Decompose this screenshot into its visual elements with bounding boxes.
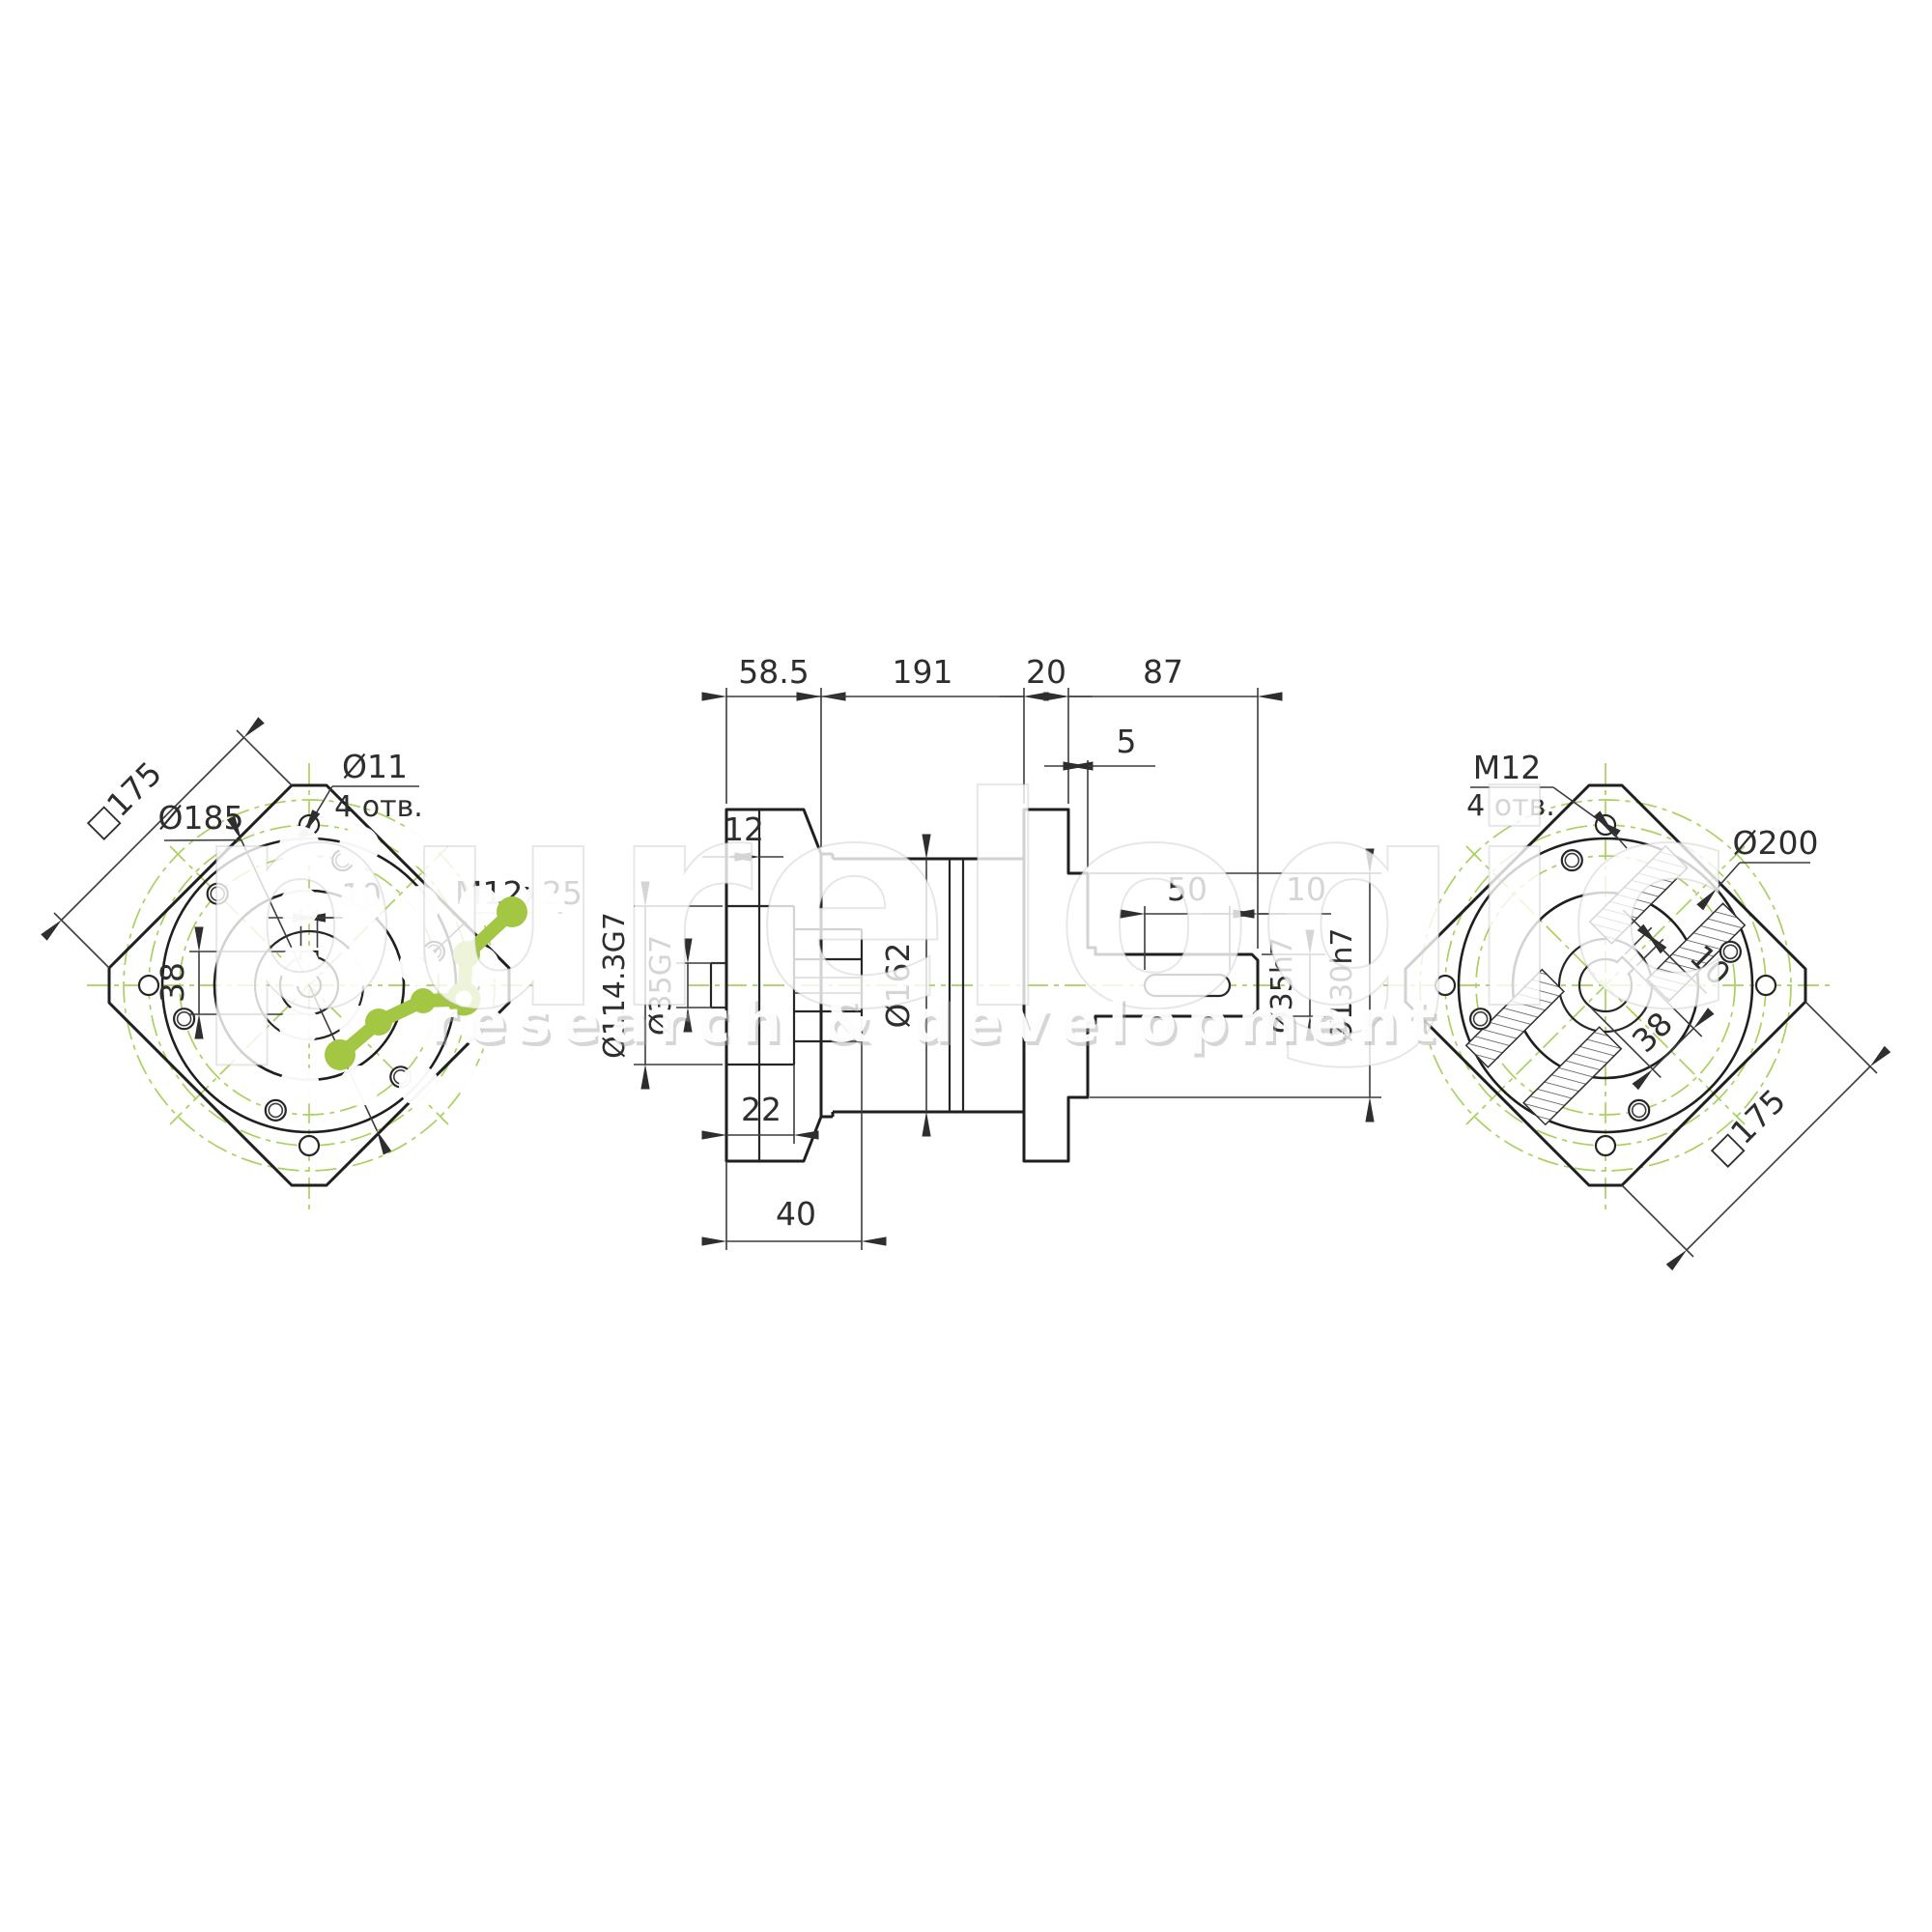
dim-recess-depth: 22 [741, 1091, 781, 1128]
left-keyway-height-label: 38 [154, 962, 191, 1003]
technical-drawing-canvas: □175 Ø185 Ø11 4 отв. 10 [0, 0, 1932, 1932]
dim-input-depth: 40 [776, 1195, 816, 1233]
watermark-subtitle: research & development [429, 988, 1445, 1056]
dim-len-flange: 20 [1026, 653, 1066, 691]
dim-len-body: 191 [893, 653, 953, 691]
watermark: purelogic research & development researc… [192, 736, 1740, 1106]
dim-len-input: 58.5 [738, 653, 809, 691]
right-pilot-dia-label: Ø200 [1733, 824, 1819, 862]
dim-len-shaft: 87 [1143, 653, 1183, 691]
